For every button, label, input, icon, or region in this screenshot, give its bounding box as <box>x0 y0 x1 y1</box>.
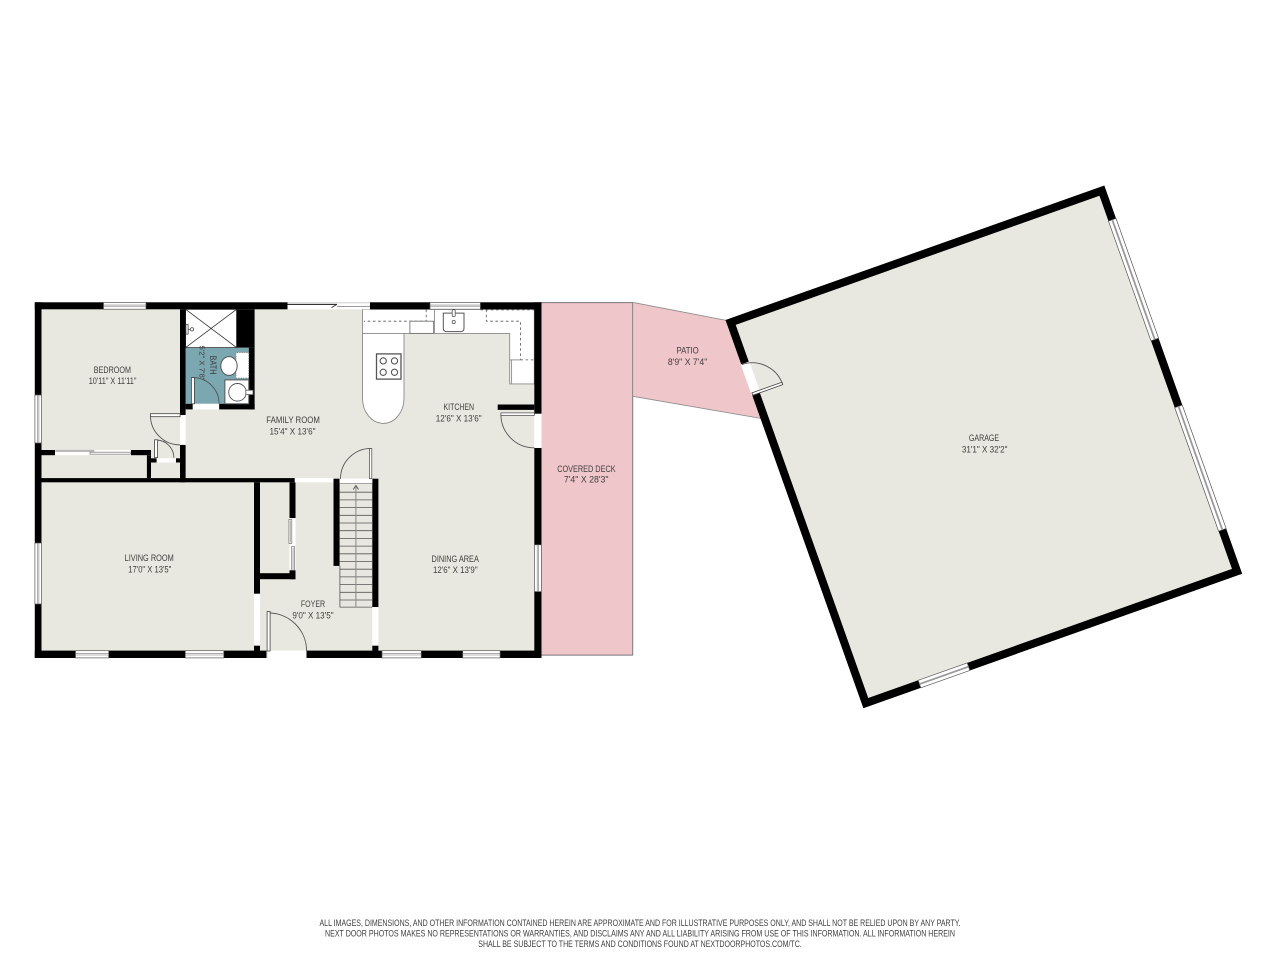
svg-text:ALL IMAGES, DIMENSIONS, AND OT: ALL IMAGES, DIMENSIONS, AND OTHER INFORM… <box>320 918 961 928</box>
svg-text:SHALL BE SUBJECT TO THE TERMS: SHALL BE SUBJECT TO THE TERMS AND CONDIT… <box>478 939 802 949</box>
svg-text:BATH: BATH <box>208 355 218 374</box>
svg-text:FOYER: FOYER <box>301 599 325 609</box>
svg-text:BEDROOM: BEDROOM <box>94 365 131 375</box>
svg-text:15'4" X 13'6": 15'4" X 13'6" <box>270 426 316 436</box>
svg-text:9'0" X 13'5": 9'0" X 13'5" <box>292 611 333 621</box>
svg-text:12'6" X 13'9": 12'6" X 13'9" <box>433 565 478 575</box>
svg-text:COVERED DECK: COVERED DECK <box>557 464 616 474</box>
svg-text:7'4" X 28'3": 7'4" X 28'3" <box>564 475 609 485</box>
svg-text:KITCHEN: KITCHEN <box>444 402 475 412</box>
svg-text:FAMILY ROOM: FAMILY ROOM <box>266 415 320 425</box>
svg-text:8'9" X 7'4": 8'9" X 7'4" <box>668 357 708 367</box>
svg-text:NEXT DOOR PHOTOS MAKES NO REPR: NEXT DOOR PHOTOS MAKES NO REPRESENTATION… <box>325 929 955 939</box>
svg-text:GARAGE: GARAGE <box>969 433 999 443</box>
svg-text:LIVING ROOM: LIVING ROOM <box>125 553 174 563</box>
svg-text:17'0" X 13'5": 17'0" X 13'5" <box>128 564 171 574</box>
svg-text:31'1" X 32'2": 31'1" X 32'2" <box>962 444 1008 454</box>
svg-text:10'11" X 11'11": 10'11" X 11'11" <box>89 376 137 386</box>
svg-text:PATIO: PATIO <box>676 346 698 356</box>
svg-text:5'2" X 7'8": 5'2" X 7'8" <box>197 346 206 381</box>
svg-text:12'6" X 13'6": 12'6" X 13'6" <box>436 413 482 423</box>
svg-text:DINING AREA: DINING AREA <box>432 554 479 564</box>
